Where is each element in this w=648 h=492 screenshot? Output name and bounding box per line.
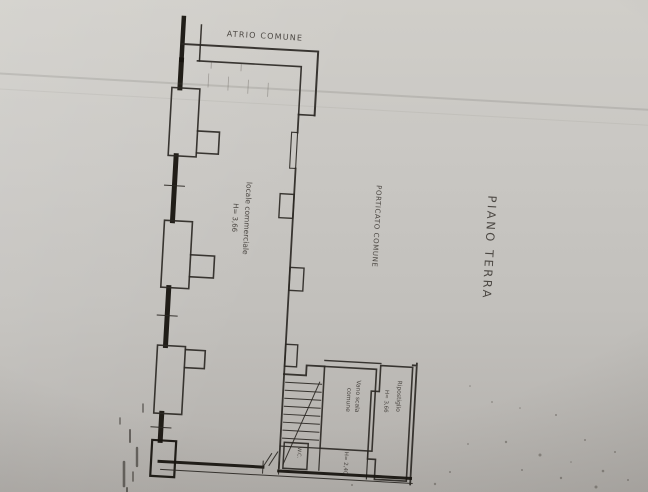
pillar <box>161 220 193 288</box>
wall-jog <box>285 344 298 367</box>
paper-edge-marks <box>120 404 143 492</box>
pillar-tab <box>196 131 219 154</box>
stair-annex <box>262 355 417 484</box>
door-swing <box>263 451 278 468</box>
wall-jog <box>279 194 294 219</box>
toner-speckles <box>351 385 629 488</box>
ripostiglio-label: Ripostiglio <box>394 380 403 412</box>
locale-commerciale-height: H= 3,66 <box>230 203 240 233</box>
right-wall <box>270 114 312 375</box>
pillar-tab <box>189 255 214 278</box>
floor-plan-photo: ATRIO COMUNE locale commerciale H= 3,66 … <box>0 0 648 492</box>
wc-label: W.C. <box>295 447 302 459</box>
annex-top-outer <box>325 360 381 363</box>
porticato-comune-label: PORTICATO COMUNE <box>370 185 383 268</box>
wall-stub-thin <box>199 25 201 61</box>
vano-scala-label: Vano scala <box>353 380 362 413</box>
pillar <box>154 345 186 414</box>
atrio-comune-label: ATRIO COMUNE <box>226 29 303 42</box>
floor-plan-drawing: ATRIO COMUNE locale commerciale H= 3,66 … <box>0 0 648 492</box>
sottoscala-height: H= 2,40 <box>342 452 349 476</box>
wall-stub-thick <box>181 18 183 60</box>
window <box>290 132 298 168</box>
vano-scala-label-2: comune <box>344 388 352 413</box>
pillar-tab <box>184 350 205 369</box>
pillar <box>150 440 176 477</box>
locale-commerciale-label: locale commerciale <box>241 182 254 256</box>
ripostiglio-height: H= 3,66 <box>382 390 389 414</box>
piano-terra-title: PIANO TERRA <box>480 195 500 300</box>
plan-group: ATRIO COMUNE locale commerciale H= 3,66 … <box>148 17 508 492</box>
left-wall <box>148 59 225 478</box>
wall-jog <box>289 267 304 291</box>
corridor-joint <box>299 115 315 116</box>
